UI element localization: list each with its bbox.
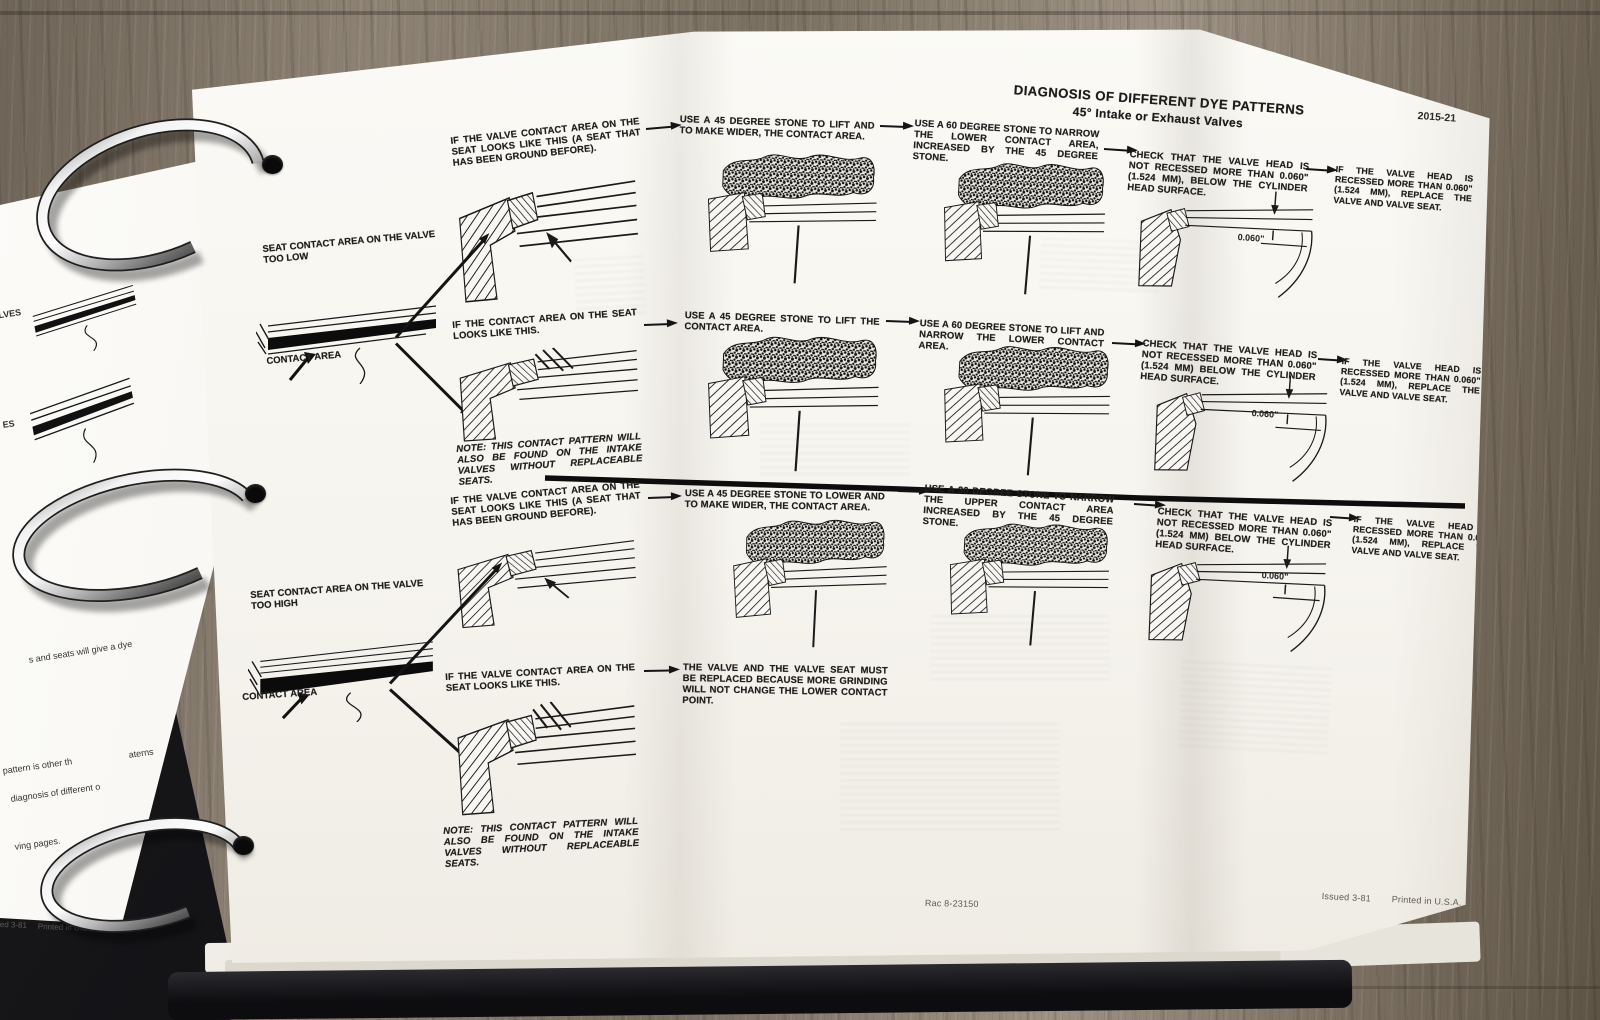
desk-plank-seam: [0, 11, 1600, 15]
grinding-stone-diagram: [700, 143, 883, 289]
seat-section-diagram-marked: [451, 699, 640, 817]
photo-scene: VALVES ES s and seats will give a dye pa…: [0, 0, 1600, 1020]
desk-plank-seam: [1330, 986, 1600, 989]
left-page-footer-issued: ed 3-81: [0, 920, 27, 930]
footer-printed: Printed in U.S.A.: [1391, 894, 1461, 908]
section-label-too-high: SEAT CONTACT AREA ON THE VALVE TOO HIGH: [250, 578, 429, 613]
flow-text-r3c2: USE A 45 DEGREE STONE TO LOWER AND TO MA…: [685, 488, 885, 514]
grinding-stone-diagram: [700, 325, 885, 477]
flow-text-r1c2: USE A 45 DEGREE STONE TO LIFT AND TO MAK…: [679, 114, 875, 143]
flow-text-r3c5: IF THE VALVE HEAD IS RECESSED MORE THAN …: [1351, 514, 1496, 565]
flow-arrow: [1104, 148, 1128, 152]
punch-hole-top: [262, 155, 283, 174]
note-text: NOTE: THIS CONTACT PATTERN WILL ALSO BE …: [443, 816, 640, 870]
manual-page: DIAGNOSIS OF DIFFERENT DYE PATTERNS 45° …: [0, 0, 1600, 1020]
recess-dimension-label: 0.060": [1237, 232, 1264, 244]
valve-recess-diagram: [1138, 536, 1331, 671]
flow-arrow: [880, 125, 904, 128]
flow-text-r1c1: IF THE VALVE CONTACT AREA ON THE SEAT LO…: [450, 116, 642, 169]
footer-doc-code: Rac 8-23150: [925, 898, 979, 909]
flow-text-r4c2: THE VALVE AND THE VALVE SEAT MUST BE REP…: [682, 662, 888, 710]
grinding-stone-diagram: [934, 151, 1111, 302]
flow-arrow: [886, 320, 910, 323]
valve-recess-diagram: [1128, 182, 1318, 316]
page-show-through: [840, 720, 1060, 830]
page-number: 2015-21: [1417, 110, 1456, 125]
flow-text-r4c1: IF THE VALVE CONTACT AREA ON THE SEAT LO…: [445, 662, 636, 694]
flow-arrow: [646, 126, 672, 130]
footer-issued: Issued 3-81: [1321, 891, 1371, 904]
recess-dimension-label: 0.060": [1261, 570, 1288, 582]
seat-section-diagram: [451, 535, 640, 630]
flow-text-r2c5: IF THE VALVE HEAD IS RECESSED MORE THAN …: [1339, 356, 1482, 406]
valve-contact-diagram-low: [256, 296, 441, 384]
flow-text-r2c1: IF THE CONTACT AREA ON THE SEAT LOOKS LI…: [452, 307, 638, 342]
flow-arrow: [644, 323, 668, 326]
punch-hole-bottom: [233, 836, 254, 855]
section-label-too-low: SEAT CONTACT AREA ON THE VALVE TOO LOW: [262, 228, 441, 266]
page-show-through: [1178, 656, 1333, 754]
seat-section-diagram-marked: [453, 345, 641, 443]
flow-text-r1c5: IF THE VALVE HEAD IS RECESSED MORE THAN …: [1333, 164, 1474, 214]
flow-arrow: [644, 670, 670, 672]
flow-arrow: [1318, 358, 1338, 361]
grinding-stone-diagram: [727, 511, 891, 652]
grinding-stone-diagram: [941, 512, 1116, 653]
left-page-fragment: ES: [2, 418, 15, 430]
punch-hole-middle: [245, 484, 266, 503]
recess-dimension-label: 0.060": [1251, 408, 1278, 420]
flow-arrow: [1306, 168, 1328, 172]
